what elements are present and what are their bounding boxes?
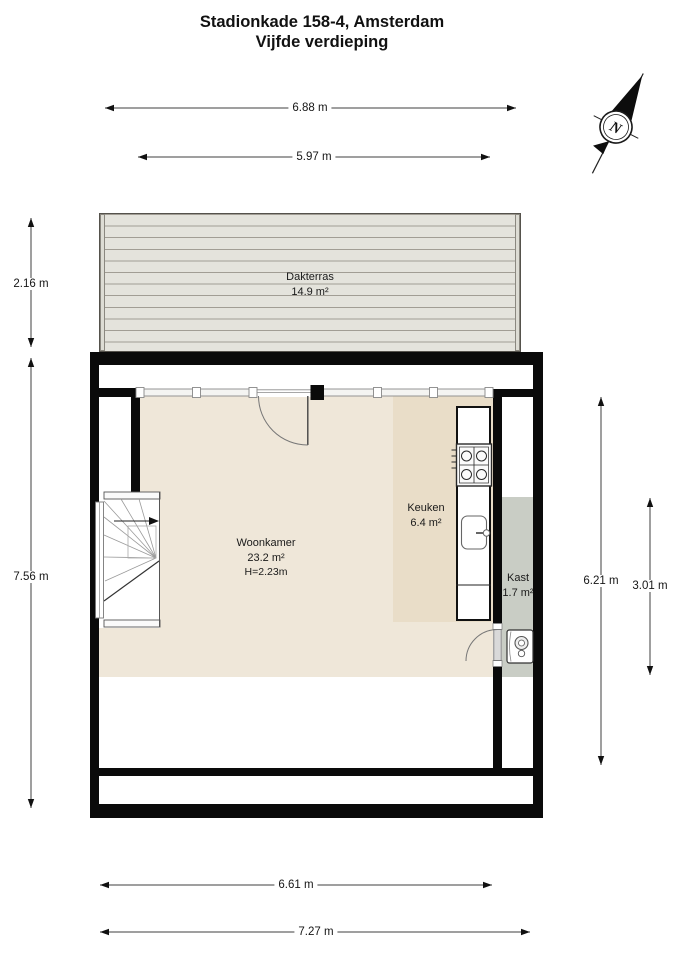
woonkamer-label: Woonkamer 23.2 m² H=2.23m: [236, 536, 295, 580]
stove-icon: [452, 444, 492, 486]
dim-label-left-lower: 7.56 m: [9, 571, 52, 583]
floor-plan: Stadionkade 158-4, Amsterdam Vijfde verd…: [0, 0, 679, 960]
room-name: Keuken: [407, 501, 444, 516]
dim-label-top-inner: 5.97 m: [292, 151, 335, 163]
dim-label-bottom-outer: 7.27 m: [294, 926, 337, 938]
room-name: Kast: [502, 571, 533, 586]
dim-label-top-outer: 6.88 m: [288, 102, 331, 114]
north-arrow-icon: N: [570, 62, 665, 184]
terrace-door: [259, 396, 308, 445]
facade-door-opening: [256, 388, 311, 397]
room-area: 1.7 m²: [502, 586, 533, 601]
dim-label-bottom-inner: 6.61 m: [274, 879, 317, 891]
keuken-label: Keuken 6.4 m²: [407, 501, 444, 530]
dakterras-label: Dakterras 14.9 m²: [286, 270, 334, 299]
kast-label: Kast 1.7 m²: [502, 571, 533, 600]
room-area: 6.4 m²: [407, 516, 444, 531]
facade-center-post: [311, 385, 325, 400]
glass-facade: [136, 385, 493, 445]
door-swing-arc: [259, 396, 308, 445]
dim-label-right-inner: 3.01 m: [628, 580, 671, 592]
door-swing-arc: [466, 630, 498, 662]
kast-door: [466, 624, 502, 667]
room-name: Woonkamer: [236, 536, 295, 551]
room-area: 23.2 m²: [236, 551, 295, 566]
dim-label-left-upper: 2.16 m: [9, 278, 52, 290]
plan-details: N: [0, 0, 679, 960]
stair-window: [96, 502, 104, 618]
room-ceiling-height: H=2.23m: [236, 565, 295, 580]
room-area: 14.9 m²: [286, 285, 334, 300]
winder-stairs-icon: [96, 492, 161, 627]
dim-label-right-outer: 6.21 m: [579, 575, 622, 587]
stair-direction-arrow: [149, 517, 159, 525]
dimension-lines: [31, 108, 650, 932]
sink-icon: [462, 516, 490, 549]
water-heater-icon: [507, 630, 533, 663]
room-name: Dakterras: [286, 270, 334, 285]
